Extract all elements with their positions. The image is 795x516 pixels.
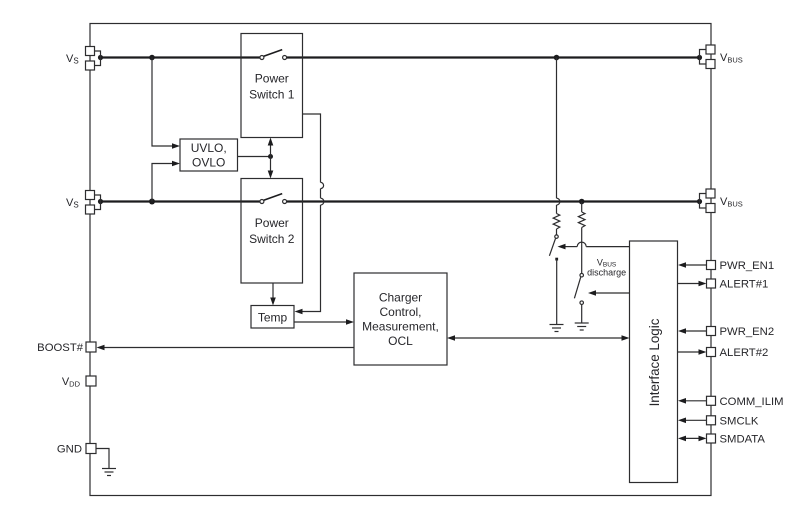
svg-text:ALERT#2: ALERT#2 [720, 347, 769, 359]
svg-text:Temp: Temp [258, 310, 288, 324]
svg-text:Switch 2: Switch 2 [249, 232, 295, 246]
svg-text:Interface Logic: Interface Logic [647, 318, 662, 406]
svg-text:GND: GND [57, 444, 82, 456]
svg-text:Control,: Control, [379, 305, 421, 319]
svg-text:Switch 1: Switch 1 [249, 88, 295, 102]
svg-text:OCL: OCL [388, 334, 413, 348]
svg-text:Power: Power [255, 72, 289, 86]
svg-text:BOOST#: BOOST# [37, 342, 84, 354]
svg-text:PWR_EN2: PWR_EN2 [720, 326, 775, 338]
svg-text:SMCLK: SMCLK [720, 415, 759, 427]
svg-text:ALERT#1: ALERT#1 [720, 279, 769, 291]
svg-text:Measurement,: Measurement, [362, 320, 439, 334]
svg-text:OVLO: OVLO [192, 156, 225, 170]
svg-text:Power: Power [255, 216, 289, 230]
svg-text:UVLO,: UVLO, [191, 141, 227, 155]
svg-text:PWR_EN1: PWR_EN1 [720, 260, 775, 272]
svg-text:discharge: discharge [587, 268, 626, 278]
svg-text:COMM_ILIM: COMM_ILIM [720, 396, 784, 408]
svg-text:SMDATA: SMDATA [720, 433, 766, 445]
svg-text:Charger: Charger [379, 291, 422, 305]
